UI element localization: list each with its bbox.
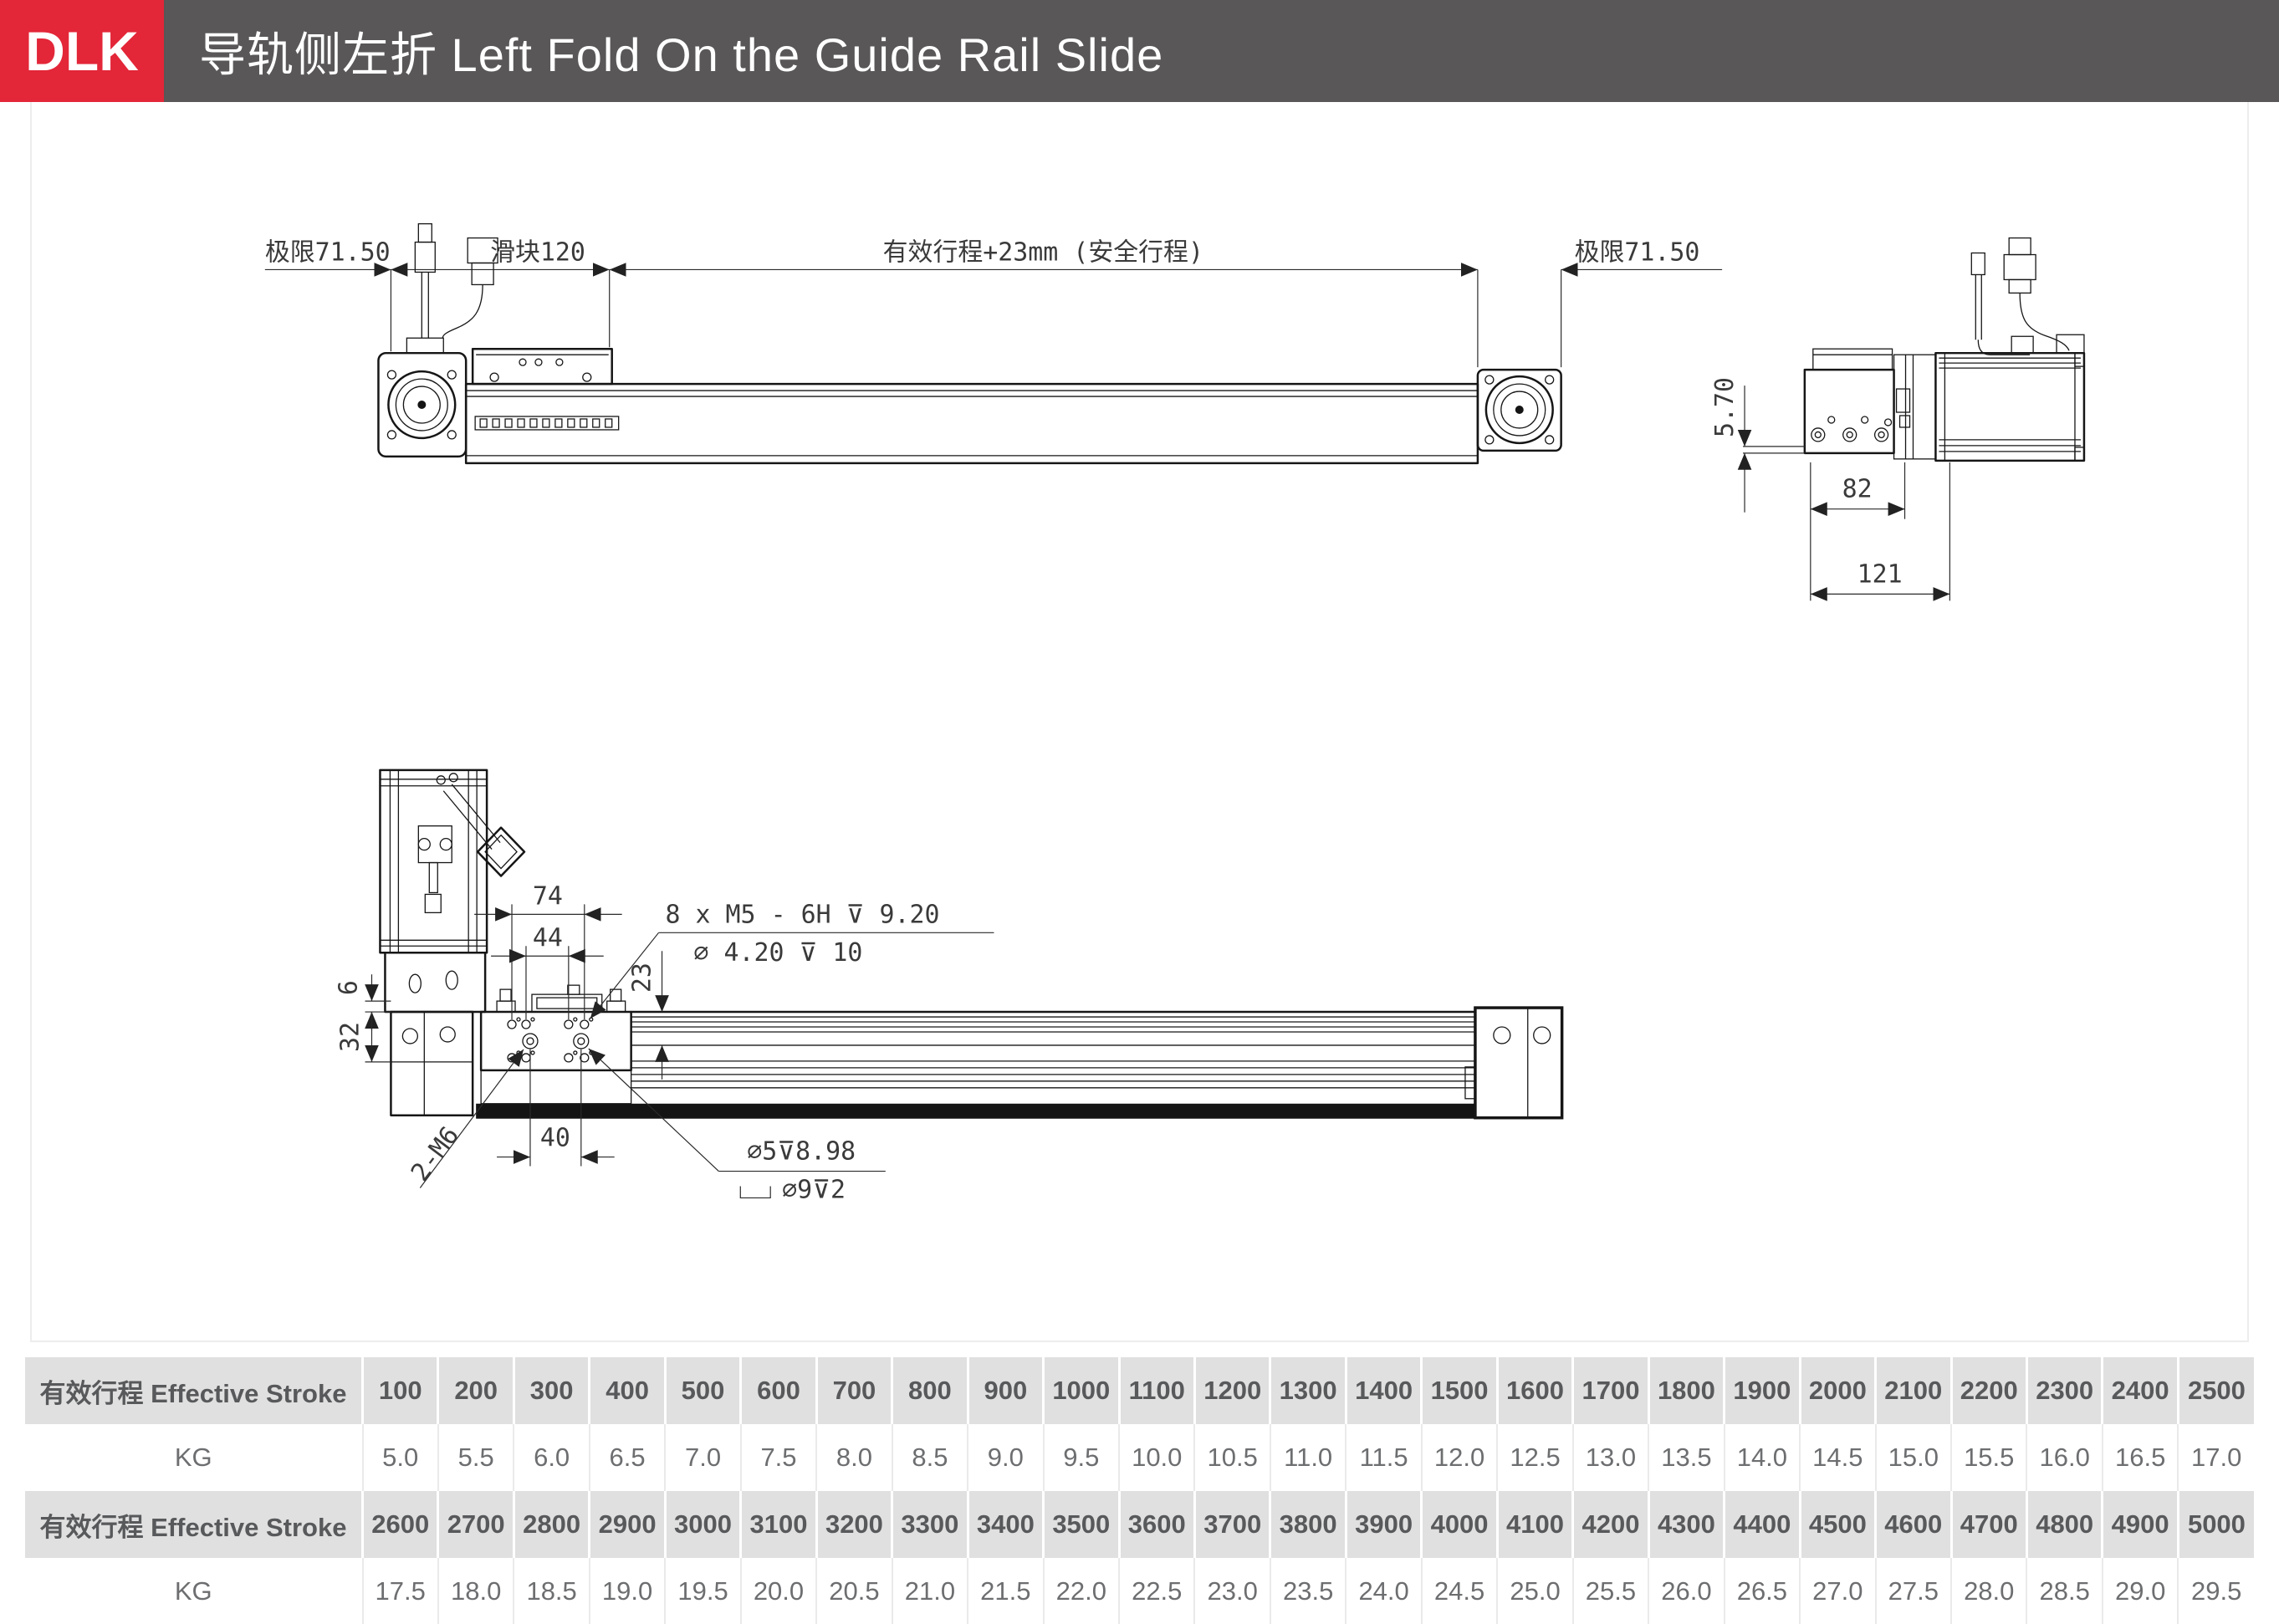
load-value-cell: 14.0 <box>1725 1424 1800 1491</box>
load-value-cell: 6.0 <box>514 1424 589 1491</box>
note-2m6: 2-M6 <box>406 1121 465 1187</box>
dim-82: 82 <box>1842 475 1873 504</box>
load-value-cell: 21.0 <box>892 1558 968 1624</box>
load-value-cell: 25.0 <box>1497 1558 1572 1624</box>
stroke-value-cell: 1100 <box>1119 1357 1194 1424</box>
stroke-value-cell: 3900 <box>1346 1491 1421 1558</box>
stroke-value-cell: 300 <box>514 1357 589 1424</box>
load-value-cell: 9.5 <box>1044 1424 1119 1491</box>
note-drill: ∅ 4.20 ⊽ 10 <box>693 938 862 968</box>
stroke-value-cell: 3800 <box>1270 1491 1346 1558</box>
dim-limit-left: 极限71.50 <box>265 237 391 267</box>
slider-screw-holes <box>508 1018 593 1062</box>
stroke-value-cell: 3500 <box>1044 1491 1119 1558</box>
stroke-value-cell: 2600 <box>363 1491 438 1558</box>
load-value-cell: 5.0 <box>363 1424 438 1491</box>
stroke-value-cell: 2800 <box>514 1491 589 1558</box>
load-value-cell: 13.0 <box>1573 1424 1648 1491</box>
stroke-value-cell: 900 <box>968 1357 1043 1424</box>
stroke-value-cell: 2500 <box>2178 1357 2254 1424</box>
stroke-value-cell: 1400 <box>1346 1357 1421 1424</box>
stroke-value-cell: 3100 <box>741 1491 816 1558</box>
counterbore-symbol <box>740 1186 770 1198</box>
load-value-cell: 6.5 <box>590 1424 665 1491</box>
load-value-cell: 12.5 <box>1497 1424 1572 1491</box>
drawing-end-view: 5.70 82 121 <box>1710 238 2084 601</box>
load-value-cell: 21.5 <box>968 1558 1043 1624</box>
dim-44: 44 <box>533 923 563 952</box>
load-value-cell: 17.0 <box>2178 1424 2254 1491</box>
stroke-value-cell: 100 <box>363 1357 438 1424</box>
dim-limit-right: 极限71.50 <box>1575 237 1700 267</box>
load-value-cell: 17.5 <box>363 1558 438 1624</box>
drawing-top-side-view: 极限71.50 滑块120 有效行程+23mm (安全行程) 极限71.50 <box>265 224 1722 463</box>
load-value-cell: 15.5 <box>1951 1424 2026 1491</box>
magnetic-scale-strip <box>480 419 612 427</box>
stroke-value-cell: 1800 <box>1648 1357 1724 1424</box>
load-value-cell: 7.5 <box>741 1424 816 1491</box>
stroke-value-cell: 3300 <box>892 1491 968 1558</box>
load-value-cell: 9.0 <box>968 1424 1043 1491</box>
load-value-cell: 11.5 <box>1346 1424 1421 1491</box>
load-value-cell: 20.0 <box>741 1558 816 1624</box>
stroke-value-cell: 3200 <box>816 1491 892 1558</box>
load-value-cell: 13.5 <box>1648 1424 1724 1491</box>
table-row: 有效行程 Effective Stroke2600270028002900300… <box>25 1491 2254 1558</box>
load-value-cell: 14.5 <box>1800 1424 1875 1491</box>
row-label: KG <box>25 1424 363 1491</box>
stroke-value-cell: 1700 <box>1573 1357 1648 1424</box>
stroke-value-cell: 2400 <box>2103 1357 2178 1424</box>
cable-connectors-end-view <box>1971 238 2084 355</box>
dim-slider-block: 滑块120 <box>490 237 585 267</box>
table-row: 有效行程 Effective Stroke1002003004005006007… <box>25 1357 2254 1424</box>
load-value-cell: 27.0 <box>1800 1558 1875 1624</box>
load-value-cell: 28.0 <box>1951 1558 2026 1624</box>
page-header: DLK 导轨侧左折 Left Fold On the Guide Rail Sl… <box>0 0 2279 102</box>
stroke-value-cell: 5000 <box>2178 1491 2254 1558</box>
load-value-cell: 7.0 <box>665 1424 740 1491</box>
dim-74: 74 <box>533 881 563 911</box>
load-value-cell: 24.0 <box>1346 1558 1421 1624</box>
note-m5-tap: 8 x M5 - 6H ⊽ 9.20 <box>666 900 940 929</box>
stroke-load-table: 有效行程 Effective Stroke1002003004005006007… <box>25 1357 2254 1624</box>
stroke-value-cell: 1600 <box>1497 1357 1572 1424</box>
stroke-value-cell: 4200 <box>1573 1491 1648 1558</box>
load-value-cell: 23.0 <box>1194 1558 1270 1624</box>
load-value-cell: 25.5 <box>1573 1558 1648 1624</box>
stroke-value-cell: 2100 <box>1876 1357 1951 1424</box>
stroke-value-cell: 400 <box>590 1357 665 1424</box>
stroke-value-cell: 1500 <box>1422 1357 1497 1424</box>
load-value-cell: 28.5 <box>2026 1558 2102 1624</box>
stroke-value-cell: 1000 <box>1044 1357 1119 1424</box>
load-value-cell: 10.5 <box>1194 1424 1270 1491</box>
row-label: KG <box>25 1558 363 1624</box>
note-hole-top: ∅5⊽8.98 <box>747 1137 856 1167</box>
stroke-value-cell: 3400 <box>968 1491 1043 1558</box>
load-value-cell: 27.5 <box>1876 1558 1951 1624</box>
load-value-cell: 29.5 <box>2178 1558 2254 1624</box>
load-value-cell: 23.5 <box>1270 1558 1346 1624</box>
load-value-cell: 11.0 <box>1270 1424 1346 1491</box>
cable-connectors-top-view <box>415 224 498 339</box>
stroke-value-cell: 3700 <box>1194 1491 1270 1558</box>
row-label: 有效行程 Effective Stroke <box>25 1491 363 1558</box>
load-value-cell: 18.0 <box>438 1558 514 1624</box>
stroke-value-cell: 2300 <box>2026 1357 2102 1424</box>
load-value-cell: 19.0 <box>590 1558 665 1624</box>
stroke-value-cell: 4400 <box>1725 1491 1800 1558</box>
load-value-cell: 18.5 <box>514 1558 589 1624</box>
load-value-cell: 26.5 <box>1725 1558 1800 1624</box>
stroke-value-cell: 4300 <box>1648 1491 1724 1558</box>
series-badge: DLK <box>0 0 164 102</box>
stroke-value-cell: 2200 <box>1951 1357 2026 1424</box>
load-value-cell: 22.5 <box>1119 1558 1194 1624</box>
dim-23: 23 <box>628 963 657 993</box>
load-value-cell: 8.0 <box>816 1424 892 1491</box>
dim-570: 5.70 <box>1710 377 1740 437</box>
load-value-cell: 10.0 <box>1119 1424 1194 1491</box>
load-value-cell: 20.5 <box>816 1558 892 1624</box>
stroke-value-cell: 4000 <box>1422 1491 1497 1558</box>
stroke-value-cell: 3600 <box>1119 1491 1194 1558</box>
stroke-value-cell: 600 <box>741 1357 816 1424</box>
stroke-value-cell: 1900 <box>1725 1357 1800 1424</box>
drawing-area: 极限71.50 滑块120 有效行程+23mm (安全行程) 极限71.50 <box>30 102 2249 1342</box>
load-value-cell: 15.0 <box>1876 1424 1951 1491</box>
dim-121: 121 <box>1857 559 1903 589</box>
load-value-cell: 22.0 <box>1044 1558 1119 1624</box>
dim-32: 32 <box>336 1022 365 1052</box>
stroke-value-cell: 800 <box>892 1357 968 1424</box>
row-label: 有效行程 Effective Stroke <box>25 1357 363 1424</box>
datasheet-page: DLK 导轨侧左折 Left Fold On the Guide Rail Sl… <box>0 0 2279 1624</box>
load-value-cell: 16.0 <box>2026 1424 2102 1491</box>
table-row: KG17.518.018.519.019.520.020.521.021.522… <box>25 1558 2254 1624</box>
dim-effective-stroke: 有效行程+23mm (安全行程) <box>883 237 1203 267</box>
dim-40: 40 <box>540 1124 570 1153</box>
drawing-plan-view: 6 32 <box>335 770 1562 1205</box>
stroke-value-cell: 4100 <box>1497 1491 1572 1558</box>
stroke-value-cell: 4800 <box>2026 1491 2102 1558</box>
stroke-value-cell: 4700 <box>1951 1491 2026 1558</box>
stroke-value-cell: 2700 <box>438 1491 514 1558</box>
stroke-value-cell: 1300 <box>1270 1357 1346 1424</box>
stroke-value-cell: 4900 <box>2103 1491 2178 1558</box>
spec-table-body: 有效行程 Effective Stroke1002003004005006007… <box>25 1357 2254 1624</box>
load-value-cell: 5.5 <box>438 1424 514 1491</box>
page-title: 导轨侧左折 Left Fold On the Guide Rail Slide <box>164 0 2279 102</box>
stroke-value-cell: 3000 <box>665 1491 740 1558</box>
stroke-value-cell: 500 <box>665 1357 740 1424</box>
load-value-cell: 8.5 <box>892 1424 968 1491</box>
technical-drawing: 极限71.50 滑块120 有效行程+23mm (安全行程) 极限71.50 <box>32 102 2247 1339</box>
stroke-value-cell: 2000 <box>1800 1357 1875 1424</box>
stroke-value-cell: 1200 <box>1194 1357 1270 1424</box>
load-value-cell: 12.0 <box>1422 1424 1497 1491</box>
stroke-value-cell: 4500 <box>1800 1491 1875 1558</box>
load-value-cell: 19.5 <box>665 1558 740 1624</box>
stroke-value-cell: 4600 <box>1876 1491 1951 1558</box>
table-row: KG5.05.56.06.57.07.58.08.59.09.510.010.5… <box>25 1424 2254 1491</box>
load-value-cell: 26.0 <box>1648 1558 1724 1624</box>
stroke-value-cell: 200 <box>438 1357 514 1424</box>
stroke-value-cell: 700 <box>816 1357 892 1424</box>
load-value-cell: 24.5 <box>1422 1558 1497 1624</box>
stroke-value-cell: 2900 <box>590 1491 665 1558</box>
load-value-cell: 29.0 <box>2103 1558 2178 1624</box>
note-hole-bottom: ∅9⊽2 <box>782 1175 846 1204</box>
dim-6: 6 <box>335 980 364 995</box>
load-value-cell: 16.5 <box>2103 1424 2178 1491</box>
